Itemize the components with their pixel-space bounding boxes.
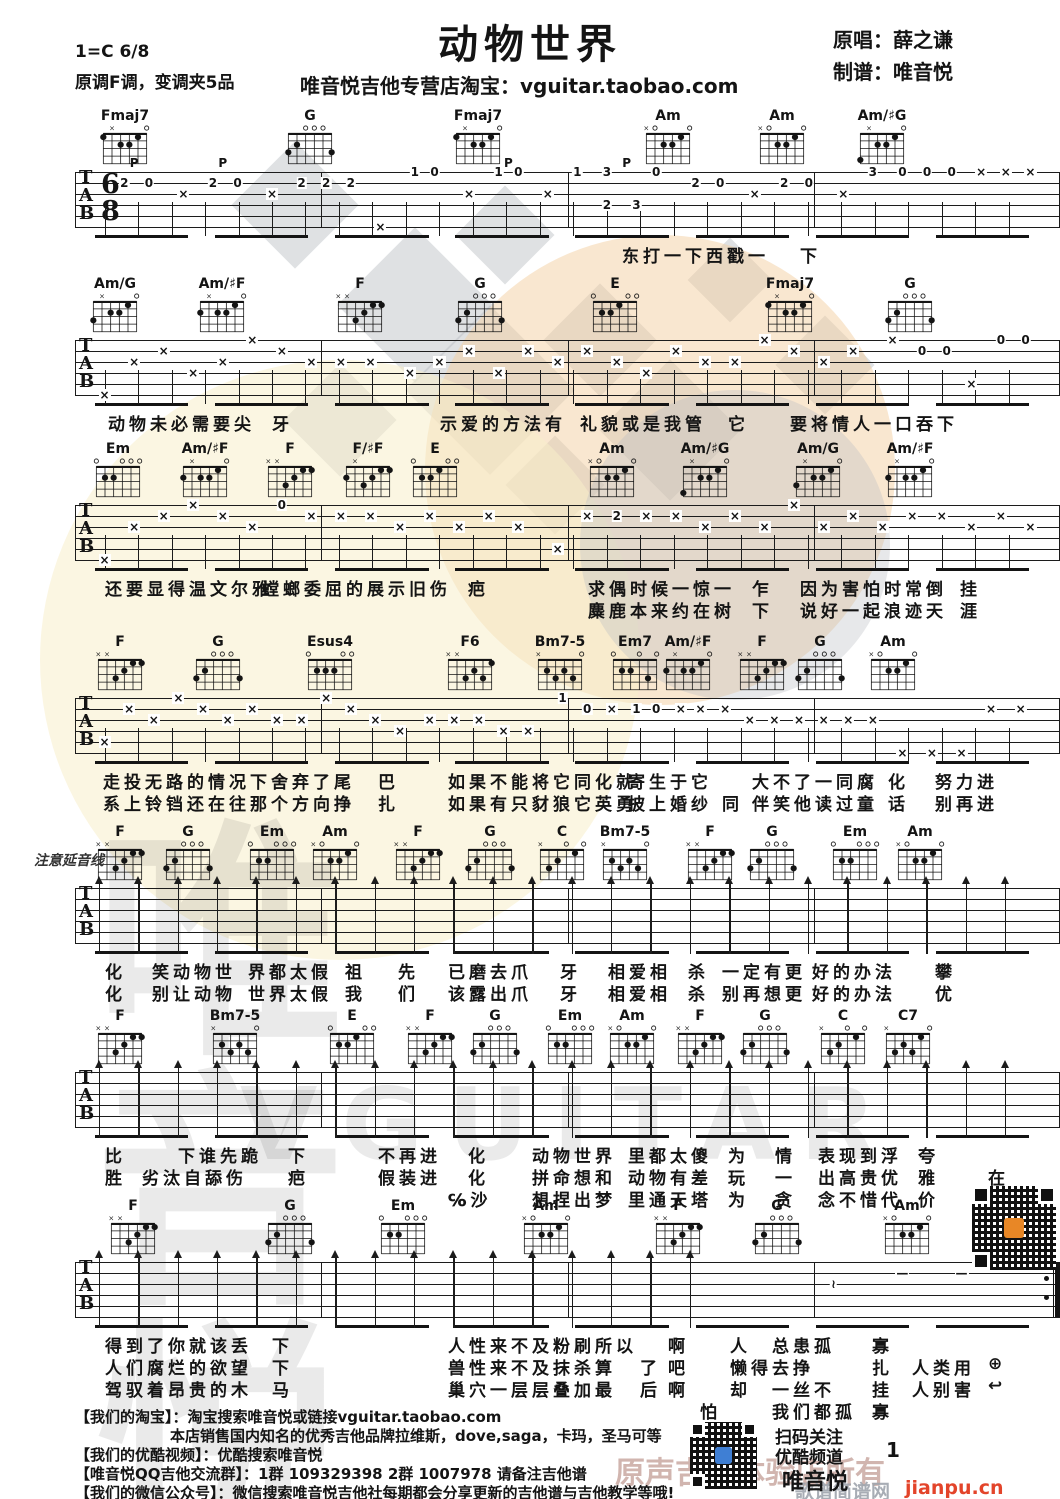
muted-note-mark: ×: [818, 521, 830, 533]
lyric-segment: 世界太假: [248, 980, 332, 1005]
strum-up-arrow: [410, 1060, 419, 1138]
muted-note-mark: ×: [271, 714, 283, 726]
strum-up-arrow: [646, 1060, 655, 1138]
strum-up-arrow: [292, 876, 301, 954]
beam-group: [816, 1325, 910, 1328]
chord-label: G: [162, 824, 214, 839]
muted-note-mark: ×: [512, 521, 524, 533]
lyric-segment: 螳螂委屈的展示旧伤: [262, 575, 451, 600]
chord-label: E: [409, 441, 461, 456]
beam-group: [575, 568, 669, 571]
note-stem: [272, 728, 273, 762]
svg-text:×: ×: [521, 1215, 527, 1223]
note-stem: [573, 535, 574, 569]
strum-up-arrow: [765, 1060, 774, 1138]
beam-group: [816, 951, 910, 954]
tab-staff: TAB×××××××××××××××××××××××××××00×00: [75, 340, 1060, 395]
note-stem: [808, 728, 809, 762]
fret-number: 0: [651, 703, 661, 715]
footer-info-line: 【我们的淘宝】：淘宝搜索唯音悦或链接vguitar.taobao.com: [75, 1406, 501, 1427]
chord-block: Am×: [894, 824, 946, 893]
arrow-shaft: [256, 1067, 258, 1138]
beam-group: [936, 568, 1030, 571]
fret-number: 0: [922, 166, 932, 178]
qr-code-youku: [690, 1422, 757, 1489]
muted-note-mark: ×: [99, 389, 111, 401]
measure-barline: [814, 1262, 815, 1317]
note-stem: [305, 728, 306, 762]
chord-label: F: [334, 276, 386, 291]
muted-note-mark: ×: [788, 499, 800, 511]
muted-note-mark: ×: [729, 510, 741, 522]
svg-text:×: ×: [352, 458, 358, 466]
muted-note-mark: ×: [640, 367, 652, 379]
svg-text:×: ×: [104, 841, 110, 849]
chord-label: C: [817, 1008, 869, 1023]
note-stem: [205, 370, 206, 404]
beam-group: [215, 761, 309, 764]
svg-text:×: ×: [818, 1025, 824, 1033]
lyric-segment: 好的办法: [812, 980, 896, 1005]
strum-up-arrow: [607, 1250, 616, 1328]
strum-up-arrow: [725, 876, 734, 954]
fret-number: 2: [208, 177, 218, 189]
muted-note-mark: ×: [1015, 703, 1027, 715]
arrow-shaft: [1005, 1067, 1007, 1138]
svg-text:×: ×: [689, 458, 695, 466]
chord-label: F: [736, 634, 788, 649]
strum-up-arrow: [95, 1060, 104, 1138]
chord-label: Am: [520, 1198, 572, 1213]
note-stem: [875, 535, 876, 569]
svg-text:×: ×: [95, 1025, 101, 1033]
fret-number: 1: [410, 166, 420, 178]
svg-text:×: ×: [310, 841, 316, 849]
beam-group: [455, 761, 549, 764]
strum-up-arrow: [568, 1060, 577, 1138]
note-stem: [841, 370, 842, 404]
svg-text:×: ×: [662, 1215, 668, 1223]
note-stem: [674, 370, 675, 404]
muted-note-mark: ×: [985, 703, 997, 715]
note-stem: [640, 535, 641, 569]
muted-note-mark: ×: [877, 521, 889, 533]
qr-finder: [1038, 1186, 1056, 1204]
muted-note-mark: ×: [99, 736, 111, 748]
beam-group: [575, 235, 669, 238]
chord-label: Em: [377, 1198, 429, 1213]
chord-block: Am×: [756, 108, 808, 177]
chord-label: F: [94, 1008, 146, 1023]
muted-note-mark: ×: [493, 367, 505, 379]
muted-note-mark: ×: [729, 356, 741, 368]
staff-line: [75, 227, 1060, 228]
tab-staff: TAB: [75, 888, 1060, 943]
note-stem: [473, 202, 474, 236]
measure-barline: [814, 1072, 815, 1127]
arrow-shaft: [99, 1257, 101, 1328]
arrow-shaft: [414, 1257, 416, 1328]
note-stem: [573, 370, 574, 404]
svg-text:×: ×: [414, 1025, 420, 1033]
arrow-shaft: [217, 1067, 219, 1138]
muted-note-mark: ×: [433, 356, 445, 368]
arrow-shaft: [808, 883, 810, 954]
note-stem: [640, 728, 641, 762]
note-stem: [372, 202, 373, 236]
chord-block: Am×: [642, 108, 694, 177]
lyric-segment: 巢穴一层层叠加最: [448, 1376, 616, 1401]
chord-block: Am/♯F×: [884, 441, 936, 510]
arrow-shaft: [375, 883, 377, 954]
strum-up-arrow: [292, 1250, 301, 1328]
lyric-segment: 寡: [872, 1398, 893, 1423]
footer-info-line: 【我们的微信公众号】：微信搜索唯音悦吉他社每期都会分享更新的吉他谱与吉他教学等哦…: [75, 1482, 674, 1499]
note-stem: [439, 370, 440, 404]
muted-note-mark: ×: [744, 714, 756, 726]
beam-group: [816, 403, 910, 406]
arrow-shaft: [414, 883, 416, 954]
fret-number: ≀: [830, 1278, 837, 1290]
svg-text:×: ×: [344, 293, 350, 301]
beam-group: [95, 403, 189, 406]
muted-note-mark: ×: [187, 499, 199, 511]
chord-block: Fmaj7×: [764, 276, 816, 345]
note-stem: [741, 728, 742, 762]
muted-note-mark: ×: [246, 521, 258, 533]
chord-label: Am: [867, 634, 919, 649]
lyric-segment: 下: [800, 242, 821, 267]
muted-note-mark: ×: [788, 345, 800, 357]
chord-block: F××: [107, 1198, 159, 1267]
beam-group: [335, 235, 429, 238]
chord-block: F××: [736, 634, 788, 703]
chord-label: Am/♯F: [179, 441, 231, 456]
muted-note-mark: ×: [99, 554, 111, 566]
beam-group: [215, 403, 309, 406]
note-stem: [540, 728, 541, 762]
lyric-segment: 同: [722, 790, 743, 815]
svg-text:×: ×: [109, 125, 115, 133]
fret-number: 0: [897, 166, 907, 178]
note-stem: [942, 202, 943, 236]
lyric-segment: ↩: [988, 1376, 1006, 1396]
fret-number: 2: [296, 177, 306, 189]
lyric-segment: 我们都孤: [772, 1398, 856, 1423]
muted-note-mark: ×: [842, 714, 854, 726]
note-stem: [205, 535, 206, 569]
muted-note-mark: ×: [374, 221, 386, 233]
arrow-shaft: [493, 1067, 495, 1138]
arrow-shaft: [532, 1257, 534, 1328]
fret-number: 0: [942, 345, 952, 357]
chord-block: F6××: [444, 634, 496, 703]
note-stem: [942, 728, 943, 762]
chord-block: Fmaj7×: [99, 108, 151, 177]
chord-label: Bm7-5: [599, 824, 651, 839]
qr-finder: [972, 1186, 990, 1204]
fret-number: 2: [602, 199, 612, 211]
fret-number: 2: [346, 177, 356, 189]
arrow-shaft: [611, 883, 613, 954]
qr-code-channel: [972, 1186, 1056, 1270]
arrow-shaft: [296, 883, 298, 954]
note-stem: [473, 728, 474, 762]
strum-up-arrow: [607, 1060, 616, 1138]
repeat-dot: [1044, 1276, 1049, 1281]
note-stem: [975, 202, 976, 236]
svg-text:×: ×: [206, 293, 212, 301]
tie-reminder-note: 注意延音线: [34, 850, 104, 870]
lyric-segment: 杀: [688, 980, 709, 1005]
muted-note-mark: ×: [128, 521, 140, 533]
svg-text:×: ×: [402, 841, 408, 849]
chord-label: Am: [756, 108, 808, 123]
strum-up-arrow: [174, 1060, 183, 1138]
svg-text:×: ×: [675, 1025, 681, 1033]
note-stem: [707, 202, 708, 236]
muted-note-mark: ×: [965, 521, 977, 533]
arrow-shaft: [966, 1067, 968, 1138]
chord-label: Am/G: [89, 276, 141, 291]
arrow-shaft: [572, 883, 574, 954]
svg-text:×: ×: [104, 1025, 110, 1033]
lyric-segment: 它: [728, 410, 749, 435]
note-stem: [506, 535, 507, 569]
note-stem: [439, 202, 440, 236]
strum-up-arrow: [449, 1060, 458, 1138]
note-stem: [841, 728, 842, 762]
lyric-segment: 我: [345, 980, 366, 1005]
strum-up-arrow: [213, 1060, 222, 1138]
beam-group: [696, 1325, 790, 1328]
arrow-shaft: [296, 1257, 298, 1328]
svg-text:×: ×: [883, 1025, 889, 1033]
muted-note-mark: ×: [955, 747, 967, 759]
muted-note-mark: ×: [320, 692, 332, 704]
muted-note-mark: ×: [581, 510, 593, 522]
svg-text:×: ×: [757, 125, 763, 133]
svg-text:×: ×: [653, 1215, 659, 1223]
chord-label: F: [404, 1008, 456, 1023]
fret-number: 0: [946, 166, 956, 178]
chord-label: G: [739, 1008, 791, 1023]
note-stem: [908, 535, 909, 569]
fret-number: 0: [1020, 334, 1030, 346]
strum-up-arrow: [371, 876, 380, 954]
arrow-shaft: [769, 883, 771, 954]
fret-number: 1: [631, 703, 641, 715]
lyric-segment: 动物未必需要尖: [108, 410, 255, 435]
svg-text:×: ×: [694, 841, 700, 849]
note-stem: [707, 535, 708, 569]
svg-text:×: ×: [265, 458, 271, 466]
chord-label: Fmaj7: [99, 108, 151, 123]
svg-text:×: ×: [600, 841, 606, 849]
fret-number: 0: [996, 334, 1006, 346]
chord-label: Am: [606, 1008, 658, 1023]
muted-note-mark: ×: [837, 188, 849, 200]
arrow-shaft: [217, 1257, 219, 1328]
svg-text:×: ×: [587, 458, 593, 466]
arrow-shaft: [335, 1067, 337, 1138]
note-stem: [674, 728, 675, 762]
note-stem: [875, 728, 876, 762]
muted-note-mark: ×: [694, 703, 706, 715]
lyric-segment: 别再进: [935, 790, 998, 815]
chord-block: Am/G×: [89, 276, 141, 345]
beam-group: [215, 568, 309, 571]
chord-label: Am: [586, 441, 638, 456]
repeat-dot: [1044, 1295, 1049, 1300]
chord-block: F××: [264, 441, 316, 510]
strum-up-arrow: [725, 1060, 734, 1138]
muted-note-mark: ×: [611, 356, 623, 368]
strum-up-arrow: [95, 876, 104, 954]
fret-number: 0: [651, 166, 661, 178]
lyric-segment: 示爱的方法有: [440, 410, 566, 435]
chord-label: Fmaj7: [452, 108, 504, 123]
arrow-shaft: [453, 883, 455, 954]
muted-note-mark: ×: [364, 356, 376, 368]
note-stem: [138, 535, 139, 569]
muted-note-mark: ×: [995, 510, 1007, 522]
tab-letter: B: [79, 373, 94, 391]
footer-info-line: 本店销售国内知名的优秀吉他品牌拉维斯，dove,saga，卡玛，圣马可等: [170, 1425, 662, 1446]
fret-number: 0: [232, 177, 242, 189]
strum-up-arrow: [962, 876, 971, 954]
lyric-segment: 还要显得温文尔雅: [105, 575, 273, 600]
chord-label: C: [536, 824, 588, 839]
chord-block: E: [589, 276, 641, 345]
chord-label: G: [884, 276, 936, 291]
note-stem: [975, 535, 976, 569]
muted-note-mark: ×: [847, 510, 859, 522]
fret-number: 3: [631, 199, 641, 211]
original-singer: 原唱：薛之谦: [833, 24, 953, 53]
svg-text:×: ×: [210, 1025, 216, 1033]
note-stem: [774, 535, 775, 569]
beam-group: [455, 403, 549, 406]
muted-note-mark: ×: [266, 188, 278, 200]
measure-barline: [321, 698, 322, 753]
muted-note-mark: ×: [463, 345, 475, 357]
arrow-shaft: [335, 1257, 337, 1328]
arrow-shaft: [414, 1067, 416, 1138]
arrow-shaft: [99, 1067, 101, 1138]
note-stem: [138, 728, 139, 762]
strum-up-arrow: [489, 1060, 498, 1138]
tab-staff: TAB≀——: [75, 1262, 1060, 1317]
muted-note-mark: ×: [1024, 521, 1036, 533]
note-stem: [540, 370, 541, 404]
muted-note-mark: ×: [335, 356, 347, 368]
note-stem: [707, 728, 708, 762]
tab-maker: 制谱：唯音悦: [833, 56, 953, 85]
fret-number: 2: [612, 510, 622, 522]
note-stem: [908, 370, 909, 404]
lyric-segment: 说好一起浪迹天: [800, 597, 947, 622]
lyric-segment: 东打一下西戳一: [622, 242, 769, 267]
muted-note-mark: ×: [522, 725, 534, 737]
muted-note-mark: ×: [463, 188, 475, 200]
page-number: 1: [886, 1438, 900, 1462]
beam-group: [816, 1135, 910, 1138]
chord-label: F: [107, 1198, 159, 1213]
strum-up-arrow: [1001, 1060, 1010, 1138]
svg-text:×: ×: [643, 125, 649, 133]
arrow-shaft: [926, 883, 928, 954]
note-stem: [841, 535, 842, 569]
note-stem: [272, 535, 273, 569]
svg-text:×: ×: [104, 651, 110, 659]
chord-label: Am/♯F: [884, 441, 936, 456]
lyric-segment: 胜: [105, 1164, 126, 1189]
strum-up-arrow: [962, 1060, 971, 1138]
chord-label: Fmaj7: [764, 276, 816, 291]
note-stem: [372, 535, 373, 569]
strum-up-arrow: [568, 1250, 577, 1328]
brand-label: 唯音悦: [782, 1464, 848, 1496]
footer-info-line: 【我们的优酷视频】：优酷搜索唯音悦: [75, 1444, 323, 1465]
strum-up-arrow: [134, 1060, 143, 1138]
strum-up-arrow: [528, 1250, 537, 1328]
note-stem: [942, 535, 943, 569]
note-stem: [439, 535, 440, 569]
muted-note-mark: ×: [699, 356, 711, 368]
muted-note-mark: ×: [581, 345, 593, 357]
svg-text:×: ×: [684, 1025, 690, 1033]
note-stem: [239, 202, 240, 236]
note-stem: [439, 728, 440, 762]
measure-barline: [321, 505, 322, 560]
measure-barline: [814, 505, 815, 560]
measure-barline: [75, 505, 76, 560]
arrow-shaft: [493, 883, 495, 954]
lyric-segment: 怕: [700, 1398, 721, 1423]
chord-label: G: [454, 276, 506, 291]
beam-group: [335, 568, 429, 571]
note-stem: [774, 370, 775, 404]
note-stem: [473, 370, 474, 404]
muted-note-mark: ×: [818, 356, 830, 368]
beam-group: [936, 1325, 1030, 1328]
beam-group: [455, 568, 549, 571]
measure-barline: [321, 340, 322, 395]
chord-block: Em7: [609, 634, 661, 703]
note-stem: [239, 370, 240, 404]
fret-number: 1: [493, 166, 503, 178]
strum-up-arrow: [252, 1060, 261, 1138]
svg-text:×: ×: [895, 841, 901, 849]
chord-label: Esus4: [304, 634, 356, 649]
svg-text:×: ×: [95, 651, 101, 659]
chord-label: G: [746, 824, 798, 839]
muted-note-mark: ×: [424, 510, 436, 522]
tab-letter: B: [79, 538, 94, 556]
lyric-segment: 相爱相: [608, 980, 671, 1005]
muted-note-mark: ×: [606, 703, 618, 715]
svg-text:×: ×: [802, 458, 808, 466]
tab-staff: TAB68PPPP20×20×222×10×10×1323020×20×3000…: [75, 172, 1060, 227]
muted-note-mark: ×: [758, 521, 770, 533]
muted-note-mark: ×: [542, 188, 554, 200]
fret-number: 2: [119, 177, 129, 189]
strum-up-arrow: [331, 1250, 340, 1328]
arrow-shaft: [1005, 883, 1007, 954]
chord-block: Am/♯F×: [196, 276, 248, 345]
lyric-segment: 麋鹿本来约在树: [588, 597, 735, 622]
